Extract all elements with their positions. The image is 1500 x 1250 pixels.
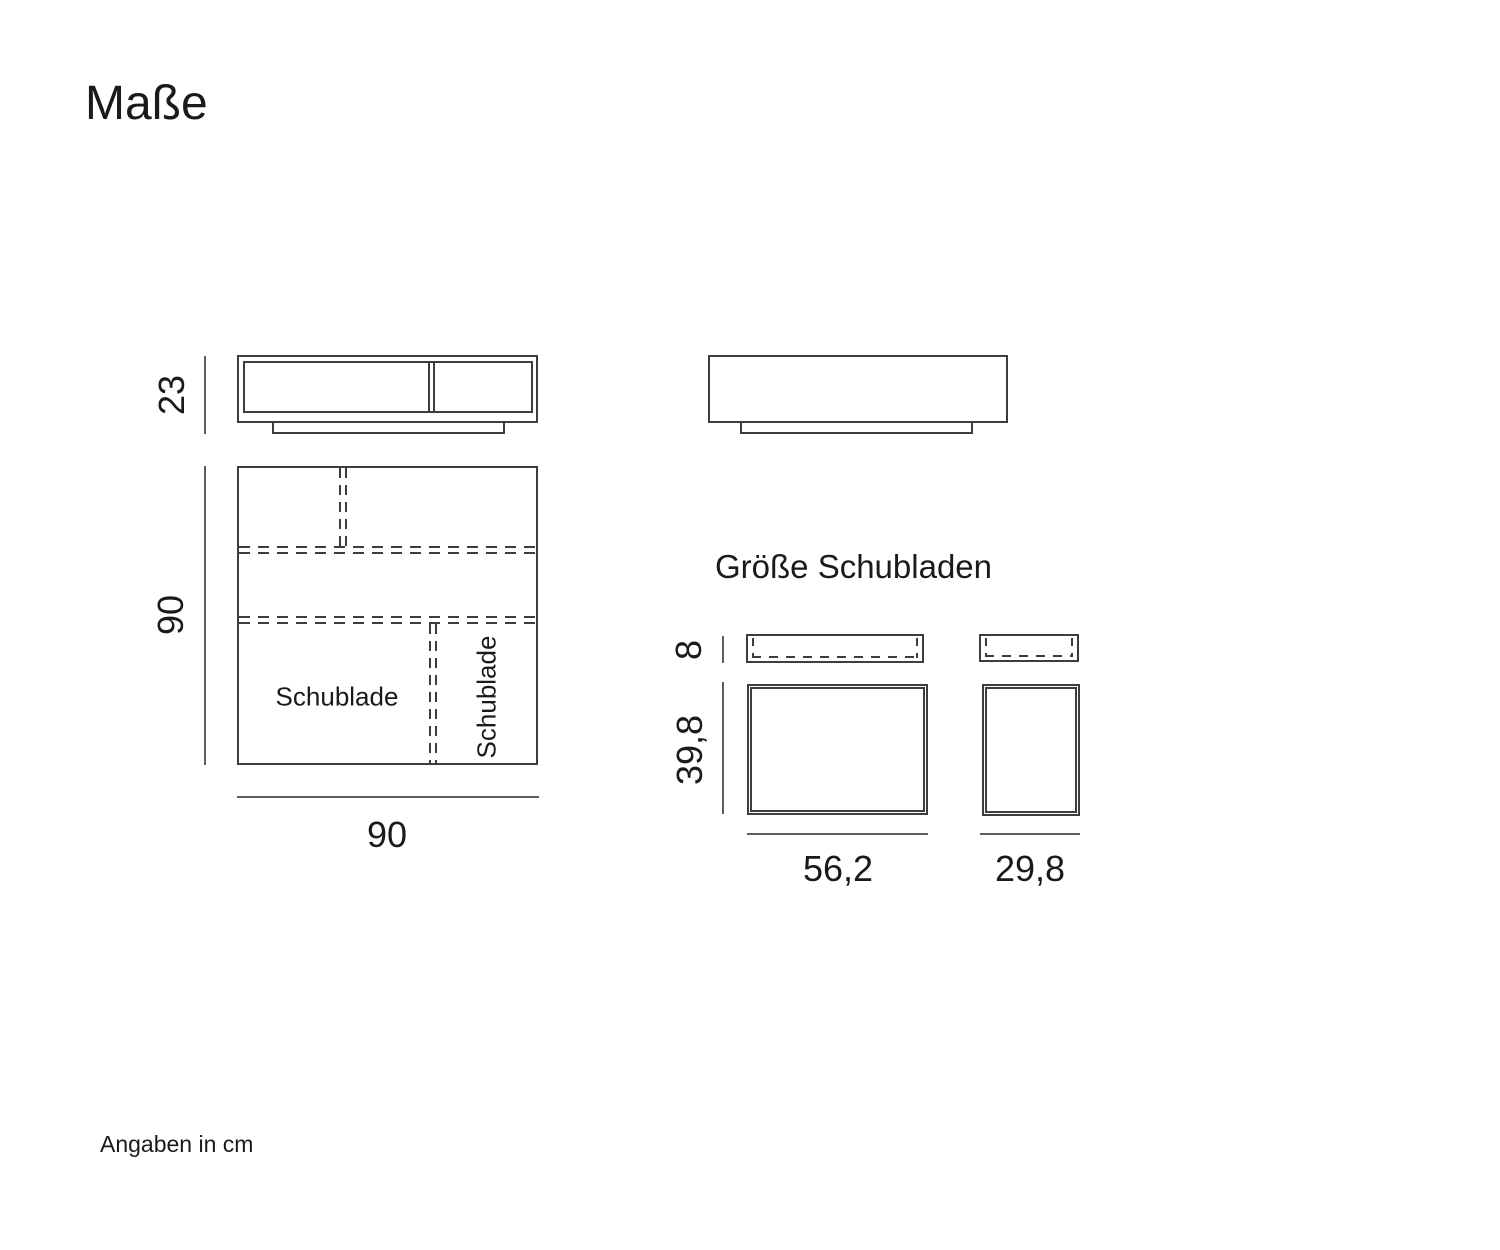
dimension-label-narrow-drawer-width: 29,8 bbox=[995, 848, 1065, 890]
dimension-label-drawer-depth: 39,8 bbox=[669, 715, 711, 785]
hidden-edge-bottom-vertical-2 bbox=[435, 624, 437, 764]
hidden-edge-bottom-vertical-1 bbox=[429, 624, 431, 764]
dimension-line-drawer-depth bbox=[722, 682, 724, 814]
page-title: Maße bbox=[85, 76, 208, 131]
dimension-label-height-23: 23 bbox=[151, 375, 193, 415]
dimension-sheet: Maße 23 Schublade Schublade 90 bbox=[0, 0, 1500, 1250]
hidden-edge-top-vertical-2 bbox=[345, 468, 347, 549]
side-view-outline bbox=[708, 355, 1008, 423]
plan-drawer-label-right: Schublade bbox=[472, 636, 503, 759]
wide-drawer-top-view-inner-wall bbox=[750, 687, 925, 812]
hidden-edge-horizontal-1a bbox=[239, 546, 536, 548]
dimension-line-width-90 bbox=[237, 796, 539, 798]
front-view-plinth bbox=[272, 421, 505, 434]
wide-drawer-hidden-edge-left bbox=[752, 638, 754, 658]
dimension-label-width-90: 90 bbox=[367, 814, 407, 856]
front-view-compartment bbox=[243, 361, 533, 413]
dimension-line-wide-drawer-width bbox=[747, 833, 928, 835]
dimension-label-depth-90: 90 bbox=[150, 595, 192, 635]
dimension-line-depth-90 bbox=[204, 466, 206, 765]
dimension-label-drawer-front-height: 8 bbox=[668, 640, 710, 660]
hidden-edge-horizontal-2b bbox=[239, 622, 536, 624]
dimension-line-drawer-front-height bbox=[722, 636, 724, 663]
dimension-line-height-23 bbox=[204, 356, 206, 434]
drawer-section-heading: Größe Schubladen bbox=[715, 548, 992, 586]
side-view-plinth bbox=[740, 421, 973, 434]
dimension-label-wide-drawer-width: 56,2 bbox=[803, 848, 873, 890]
narrow-drawer-top-view bbox=[982, 684, 1080, 816]
wide-drawer-hidden-edge-bottom bbox=[752, 656, 918, 658]
narrow-drawer-top-view-inner-wall bbox=[985, 687, 1077, 813]
units-note: Angaben in cm bbox=[100, 1131, 253, 1158]
dimension-line-narrow-drawer-width bbox=[980, 833, 1080, 835]
hidden-edge-top-vertical-1 bbox=[339, 468, 341, 549]
narrow-drawer-front-view bbox=[979, 634, 1079, 662]
plan-drawer-label-left: Schublade bbox=[276, 682, 399, 713]
front-view-divider bbox=[428, 361, 435, 413]
wide-drawer-top-view bbox=[747, 684, 928, 815]
hidden-edge-horizontal-2a bbox=[239, 616, 536, 618]
narrow-drawer-hidden-edge-bottom bbox=[985, 655, 1073, 657]
wide-drawer-hidden-edge-right bbox=[916, 638, 918, 658]
wide-drawer-front-view bbox=[746, 634, 924, 663]
hidden-edge-horizontal-1b bbox=[239, 552, 536, 554]
